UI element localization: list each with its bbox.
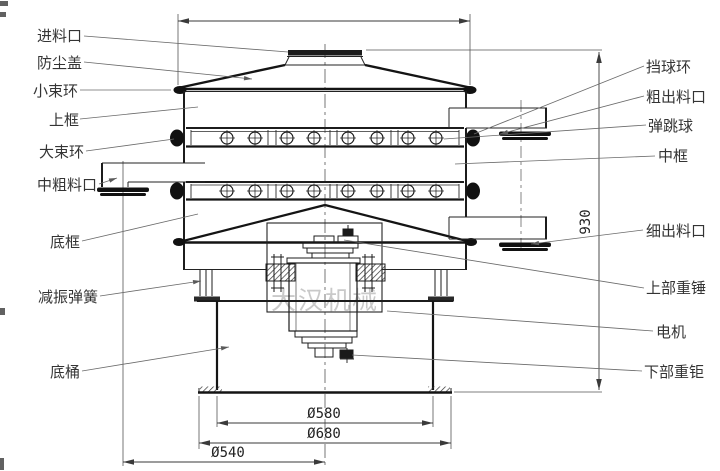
large-clamp-ring-left-2 [170, 183, 184, 200]
leader-lines [80, 36, 655, 371]
label-upper-weight: 上部重锤 [646, 280, 706, 297]
label-dust-cover: 防尘盖 [37, 55, 82, 72]
label-coarse-outlet: 粗出料口 [646, 89, 706, 106]
part-labels: 进料口 防尘盖 小束环 上框 大束环 中粗料口 底框 减振弹簧 底桶 挡球环 粗… [33, 28, 706, 381]
dim-dia-540: Ø540 [211, 445, 245, 461]
large-clamp-ring-left [170, 130, 184, 147]
scan-artifact [0, 1, 8, 470]
label-feed-inlet: 进料口 [37, 28, 82, 45]
label-motor: 电机 [656, 324, 686, 341]
large-clamp-ring-right-2 [466, 183, 480, 200]
lower-weight [295, 331, 357, 363]
label-bottom-frame: 底框 [50, 234, 80, 251]
label-large-clamp-ring: 大束环 [39, 144, 84, 161]
dim-height-930: 930 [578, 209, 594, 234]
label-fine-outlet: 细出料口 [646, 223, 706, 240]
upper-weight [287, 225, 360, 263]
label-upper-frame: 上框 [49, 112, 79, 129]
bouncing-balls-row-2 [219, 184, 444, 200]
label-bouncing-ball: 弹跳球 [648, 118, 693, 135]
center-lines [123, 44, 521, 467]
dim-dia-680: Ø680 [307, 426, 341, 442]
label-mid-coarse-outlet: 中粗料口 [37, 177, 97, 194]
label-ball-stop-ring: 挡球环 [646, 59, 691, 76]
label-middle-frame: 中框 [658, 148, 688, 165]
label-bottom-barrel: 底桶 [50, 364, 80, 381]
fine-outlet [449, 217, 551, 251]
label-damping-spring: 减振弹簧 [38, 289, 98, 306]
label-lower-weight: 下部重钜 [644, 364, 704, 381]
diagram-canvas: 大汉机械 930 Ø580 Ø680 Ø540 [0, 0, 720, 471]
dim-dia-580: Ø580 [307, 406, 341, 422]
label-small-clamp-ring: 小束环 [33, 83, 78, 100]
bouncing-balls-row-1 [219, 130, 444, 146]
vibrating-sieve-diagram: 大汉机械 930 Ø580 Ø680 Ø540 [0, 0, 720, 471]
